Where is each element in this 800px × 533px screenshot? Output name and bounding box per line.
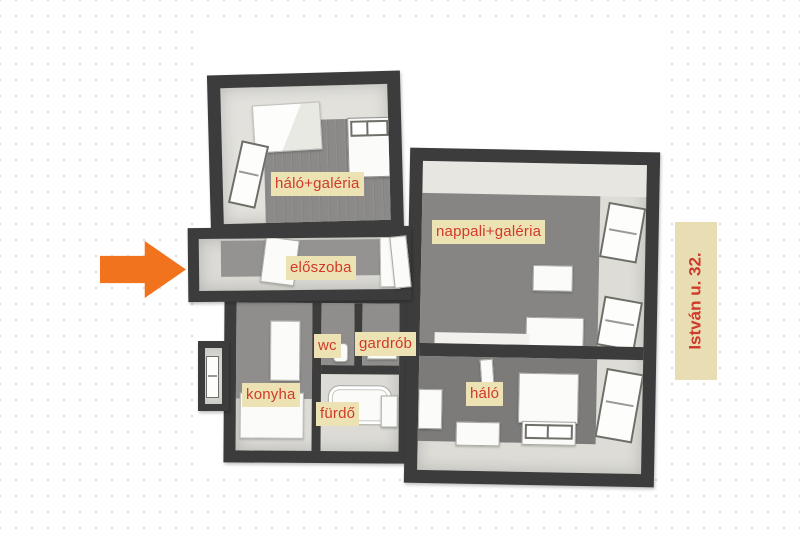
window — [599, 202, 646, 264]
bed — [518, 373, 579, 424]
headboard-panel — [367, 120, 389, 137]
bay-interior — [205, 348, 222, 404]
living-table — [533, 265, 573, 292]
footboard-panel — [547, 424, 573, 439]
room-label-furdo: fürdő — [316, 402, 359, 426]
room-label-nappali-galeria: nappali+galéria — [432, 220, 545, 244]
ceiling-edge — [422, 161, 647, 197]
bay-window — [198, 341, 229, 411]
room-label-gardrob: gardrób — [355, 332, 416, 356]
floorplan-canvas: István u. 32. háló+galéria nappali+galér… — [0, 0, 800, 533]
room-label-halo-galeria: háló+galéria — [271, 172, 364, 196]
room-halo-galeria-interior — [220, 84, 391, 224]
building-right-interior — [417, 161, 647, 474]
room-label-konyha: konyha — [242, 383, 300, 407]
kitchen-unit — [270, 321, 300, 381]
window — [596, 296, 643, 352]
window — [594, 368, 644, 444]
cabinet — [418, 389, 443, 429]
room-label-halo: háló — [466, 382, 503, 406]
bed — [347, 117, 391, 178]
rooms-kitchen-bath-block — [223, 290, 411, 463]
wall — [321, 365, 399, 375]
room-halo-galeria — [207, 71, 404, 238]
entrance-arrow-icon — [100, 241, 186, 298]
bathroom-sink — [381, 395, 398, 427]
wall — [311, 303, 321, 451]
bed-footboard — [522, 421, 576, 446]
window — [228, 140, 269, 209]
room-label-wc: wc — [314, 334, 341, 358]
sofa — [525, 317, 584, 348]
cabinet — [456, 422, 500, 447]
window — [206, 356, 219, 398]
kitchen-bath-interior — [235, 302, 399, 451]
address-strip: István u. 32. — [675, 222, 717, 380]
room-label-eloszoba: előszoba — [286, 256, 356, 280]
building-right — [404, 148, 660, 488]
address-text: István u. 32. — [686, 252, 706, 349]
